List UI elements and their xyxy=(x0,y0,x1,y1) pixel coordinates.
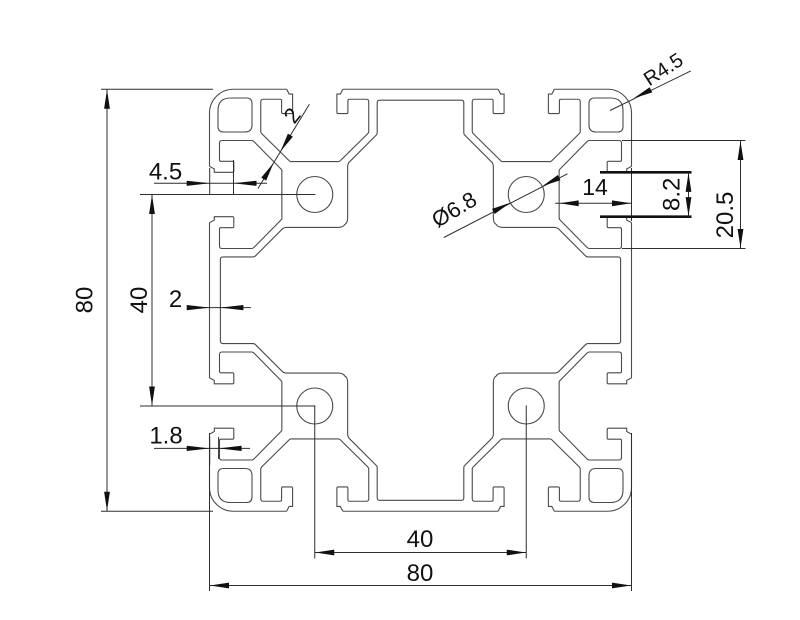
svg-text:20.5: 20.5 xyxy=(712,192,739,239)
svg-text:14: 14 xyxy=(582,174,608,200)
svg-text:80: 80 xyxy=(407,560,434,587)
svg-text:80: 80 xyxy=(72,287,99,314)
svg-text:40: 40 xyxy=(126,287,153,314)
svg-text:40: 40 xyxy=(407,526,434,553)
svg-text:8.2: 8.2 xyxy=(659,178,686,211)
svg-text:1.8: 1.8 xyxy=(149,423,182,450)
svg-text:2: 2 xyxy=(169,286,182,313)
svg-text:4.5: 4.5 xyxy=(149,159,182,186)
